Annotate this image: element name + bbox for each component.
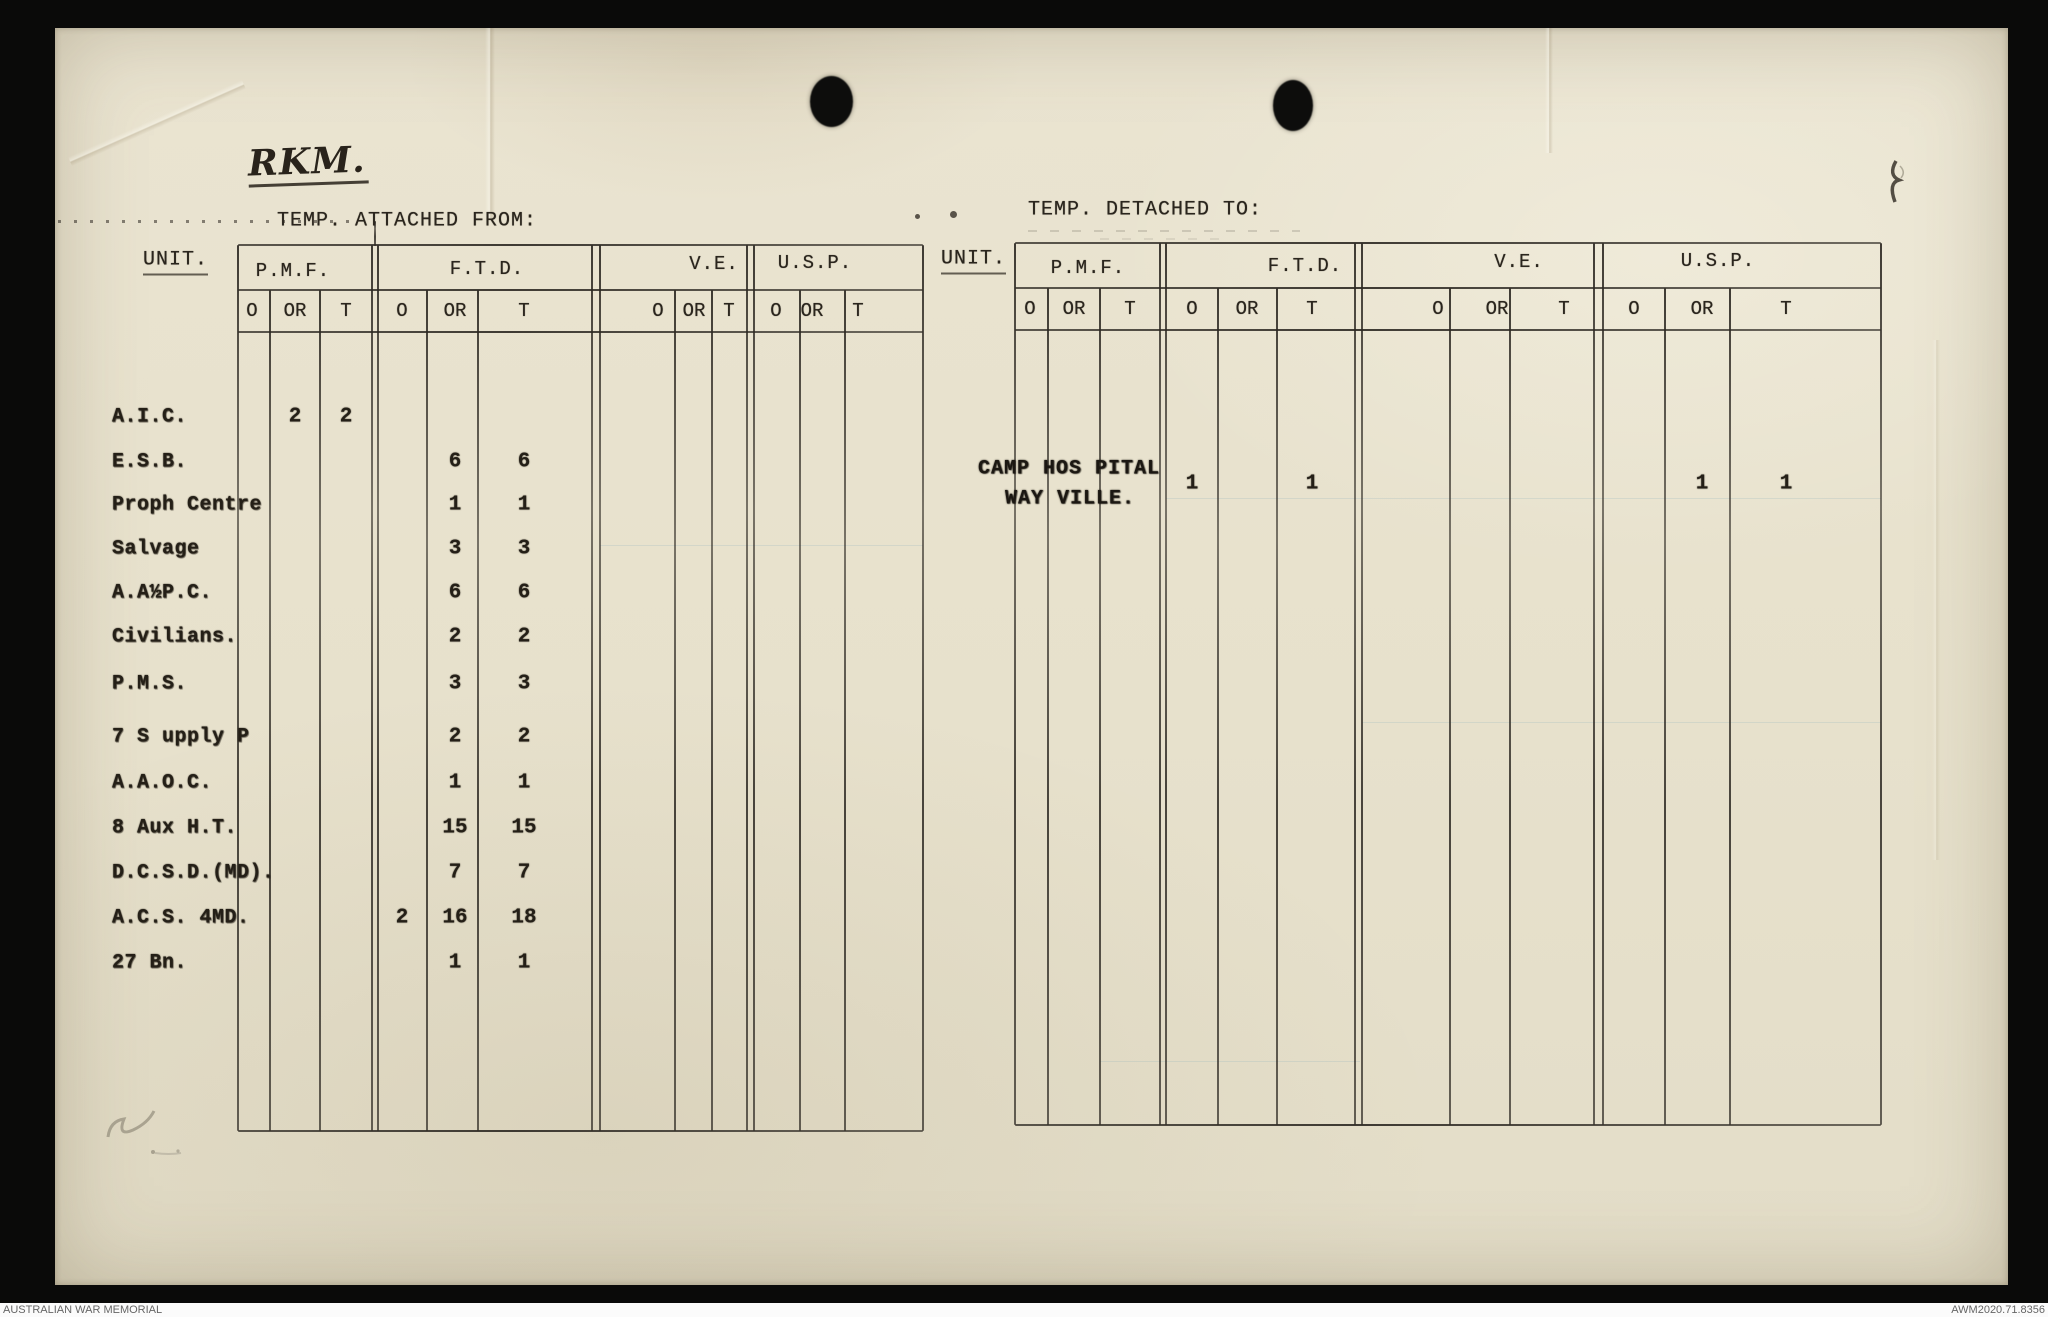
value-cell: 1 [1186,473,1199,496]
footer-left-text: AUSTRALIAN WAR MEMORIAL [3,1303,162,1317]
subcolumn-header: OR [1236,298,1259,320]
subcolumn-header: OR [683,300,706,322]
subcolumn-header: O [396,300,407,322]
subcolumn-header: O [1628,298,1639,320]
subcolumn-header: T [723,300,734,322]
value-cell: 1 [1780,473,1793,496]
table-grid-line [674,290,676,1131]
value-cell: 1 [449,952,462,975]
faint-dashes [1100,238,1230,240]
handwritten-initials: RKM. [247,138,368,187]
unit-cell: Salvage [112,538,200,561]
table-grid-line [1602,243,1604,1125]
subcolumn-header: T [852,300,863,322]
subcolumn-header: O [770,300,781,322]
table-grid-line [844,290,846,1131]
subcolumn-header: OR [444,300,467,322]
unit-cell: D.C.S.D.(MD). [112,862,275,885]
paper-crease [1545,28,1553,153]
footer-right-text: AWM2020.71.8356 [1951,1303,2045,1317]
subcolumn-header: O [652,300,663,322]
pencil-mark [100,1095,210,1175]
value-cell: 2 [449,626,462,649]
value-cell: 2 [449,726,462,749]
value-cell: 2 [518,626,531,649]
table-grid-line [711,290,713,1131]
value-cell: 15 [511,817,536,840]
unit-cell: Proph Centre [112,494,262,517]
subcolumn-header: OR [801,300,824,322]
ghost-line [1362,722,1881,723]
table-grid-line [1015,287,1881,289]
value-cell: 16 [442,907,467,930]
value-cell: 2 [396,907,409,930]
ink-dot [950,211,957,218]
unit-cell: A.A.O.C. [112,772,212,795]
table-grid-line [1047,288,1049,1125]
subcolumn-header: T [1306,298,1317,320]
unit-cell: A.C.S. 4MD. [112,907,250,930]
table-grid-line [426,290,428,1131]
ghost-line [1166,498,1881,499]
punch-hole [1273,80,1313,131]
unit-cell: A.I.C. [112,406,187,429]
table-grid-line [922,245,924,1131]
table-grid-line [238,1130,923,1132]
value-cell: 7 [449,862,462,885]
paper-crease [485,28,495,218]
table-grid-line [1165,243,1167,1125]
dotted-line [58,220,353,223]
table-grid-line [477,290,479,1131]
table-grid-line [374,221,376,246]
value-cell: 6 [518,582,531,605]
table-grid-line [1354,243,1356,1125]
table-grid-line [1015,1124,1881,1126]
value-cell: 18 [511,907,536,930]
scanned-document-page: RKM. TEMP. ATTACHED FROM: TEMP. DETACHED… [0,0,2048,1317]
paper-crease [1932,340,1940,860]
section-header: U.S.P. [1681,250,1755,272]
value-cell: 6 [518,451,531,474]
table-grid-line [1664,288,1666,1125]
table-grid-line [1217,288,1219,1125]
subcolumn-header: OR [1691,298,1714,320]
value-cell: 3 [449,538,462,561]
unit-cell: 27 Bn. [112,952,187,975]
table-grid-line [1099,288,1101,1125]
subcolumn-header: OR [1486,298,1509,320]
unit-cell: WAY VILLE. [1005,488,1135,511]
value-cell: 1 [518,494,531,517]
value-cell: 3 [518,538,531,561]
subcolumn-header: O [1186,298,1197,320]
value-cell: 15 [442,817,467,840]
value-cell: 7 [518,862,531,885]
subcolumn-header: T [1780,298,1791,320]
subcolumn-header: OR [284,300,307,322]
value-cell: 1 [1696,473,1709,496]
table-grid-line [377,245,379,1131]
subcolumn-header: O [1024,298,1035,320]
detached-unit-header: UNIT. [941,248,1006,275]
subcolumn-header: O [1432,298,1443,320]
section-header: P.M.F. [256,260,330,282]
table-grid-line [1593,243,1595,1125]
table-grid-line [799,290,801,1131]
value-cell: 6 [449,582,462,605]
table-grid-line [753,245,755,1131]
section-header: V.E. [1494,251,1544,273]
table-grid-line [746,245,748,1131]
table-grid-line [1276,288,1278,1125]
value-cell: 1 [449,494,462,517]
unit-cell: A.A½P.C. [112,582,212,605]
section-header: F.T.D. [1268,255,1342,277]
table-grid-line [599,245,601,1131]
table-grid-line [1449,288,1451,1125]
unit-cell: P.M.S. [112,673,187,696]
subcolumn-header: O [246,300,257,322]
table-grid-line [238,244,923,246]
table-grid-line [1509,288,1511,1125]
table-grid-line [591,245,593,1131]
subcolumn-header: T [518,300,529,322]
table-grid-line [1361,243,1363,1125]
unit-cell: 7 S upply P [112,726,250,749]
table-grid-line [1014,243,1016,1125]
detached-table-title: TEMP. DETACHED TO: [1028,199,1262,222]
ghost-line [1100,1061,1360,1062]
table-grid-line [319,290,321,1131]
table-grid-line [238,289,923,291]
subcolumn-header: T [1558,298,1569,320]
value-cell: 1 [449,772,462,795]
value-cell: 2 [518,726,531,749]
section-header: U.S.P. [778,252,852,274]
table-grid-line [1729,288,1731,1125]
unit-cell: E.S.B. [112,451,187,474]
section-header: P.M.F. [1051,257,1125,279]
value-cell: 6 [449,451,462,474]
section-header: F.T.D. [450,258,524,280]
paper-tear-mark [1880,158,1916,210]
value-cell: 2 [289,406,302,429]
table-grid-line [269,290,271,1131]
value-cell: 1 [1306,473,1319,496]
attached-unit-header: UNIT. [143,249,208,276]
unit-cell: CAMP HOS PITAL [978,458,1160,481]
punch-hole [810,76,853,127]
value-cell: 2 [340,406,353,429]
section-header: V.E. [689,253,739,275]
value-cell: 1 [518,772,531,795]
table-grid-line [238,331,923,333]
table-grid-line [1015,242,1881,244]
value-cell: 3 [449,673,462,696]
faint-dashes [1028,230,1300,232]
ghost-line [600,545,923,546]
ink-dot [915,214,920,219]
table-grid-line [1159,243,1161,1125]
subcolumn-header: T [340,300,351,322]
footer-bar: AUSTRALIAN WAR MEMORIAL AWM2020.71.8356 [0,1303,2048,1317]
subcolumn-header: T [1124,298,1135,320]
table-grid-line [371,245,373,1131]
value-cell: 1 [518,952,531,975]
subcolumn-header: OR [1063,298,1086,320]
unit-cell: 8 Aux H.T. [112,817,237,840]
table-grid-line [237,245,239,1131]
value-cell: 3 [518,673,531,696]
unit-cell: Civilians. [112,626,237,649]
table-grid-line [1015,329,1881,331]
table-grid-line [1880,243,1882,1125]
